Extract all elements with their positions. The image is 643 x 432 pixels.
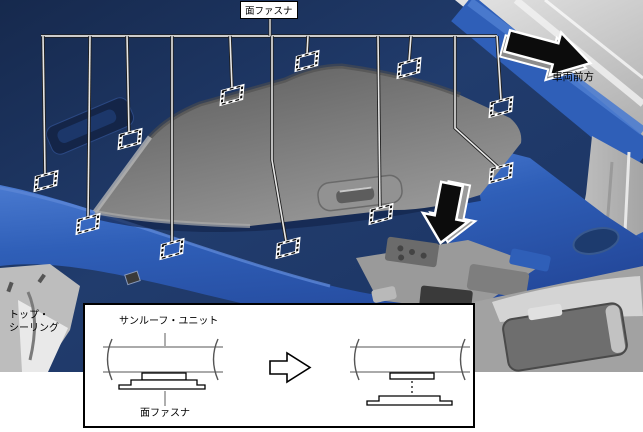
service-manual-illustration: 面ファスナ 車両前方 トップ・ シーリング	[0, 0, 643, 432]
cross-section-attached	[103, 333, 223, 406]
inset-fastener-label: 面ファスナ	[140, 408, 190, 421]
detail-inset-panel: サンルーフ・ユニット 面ファスナ	[83, 303, 475, 428]
top-ceiling-label: トップ・ シーリング	[9, 310, 59, 335]
transform-arrow-icon	[270, 353, 310, 382]
vehicle-front-label: 車両前方	[552, 71, 594, 84]
sunroof-unit-label: サンルーフ・ユニット	[119, 316, 218, 329]
cross-section-detached	[350, 339, 470, 405]
fastener-callout-label: 面ファスナ	[240, 1, 298, 19]
leader-line	[307, 36, 308, 54]
